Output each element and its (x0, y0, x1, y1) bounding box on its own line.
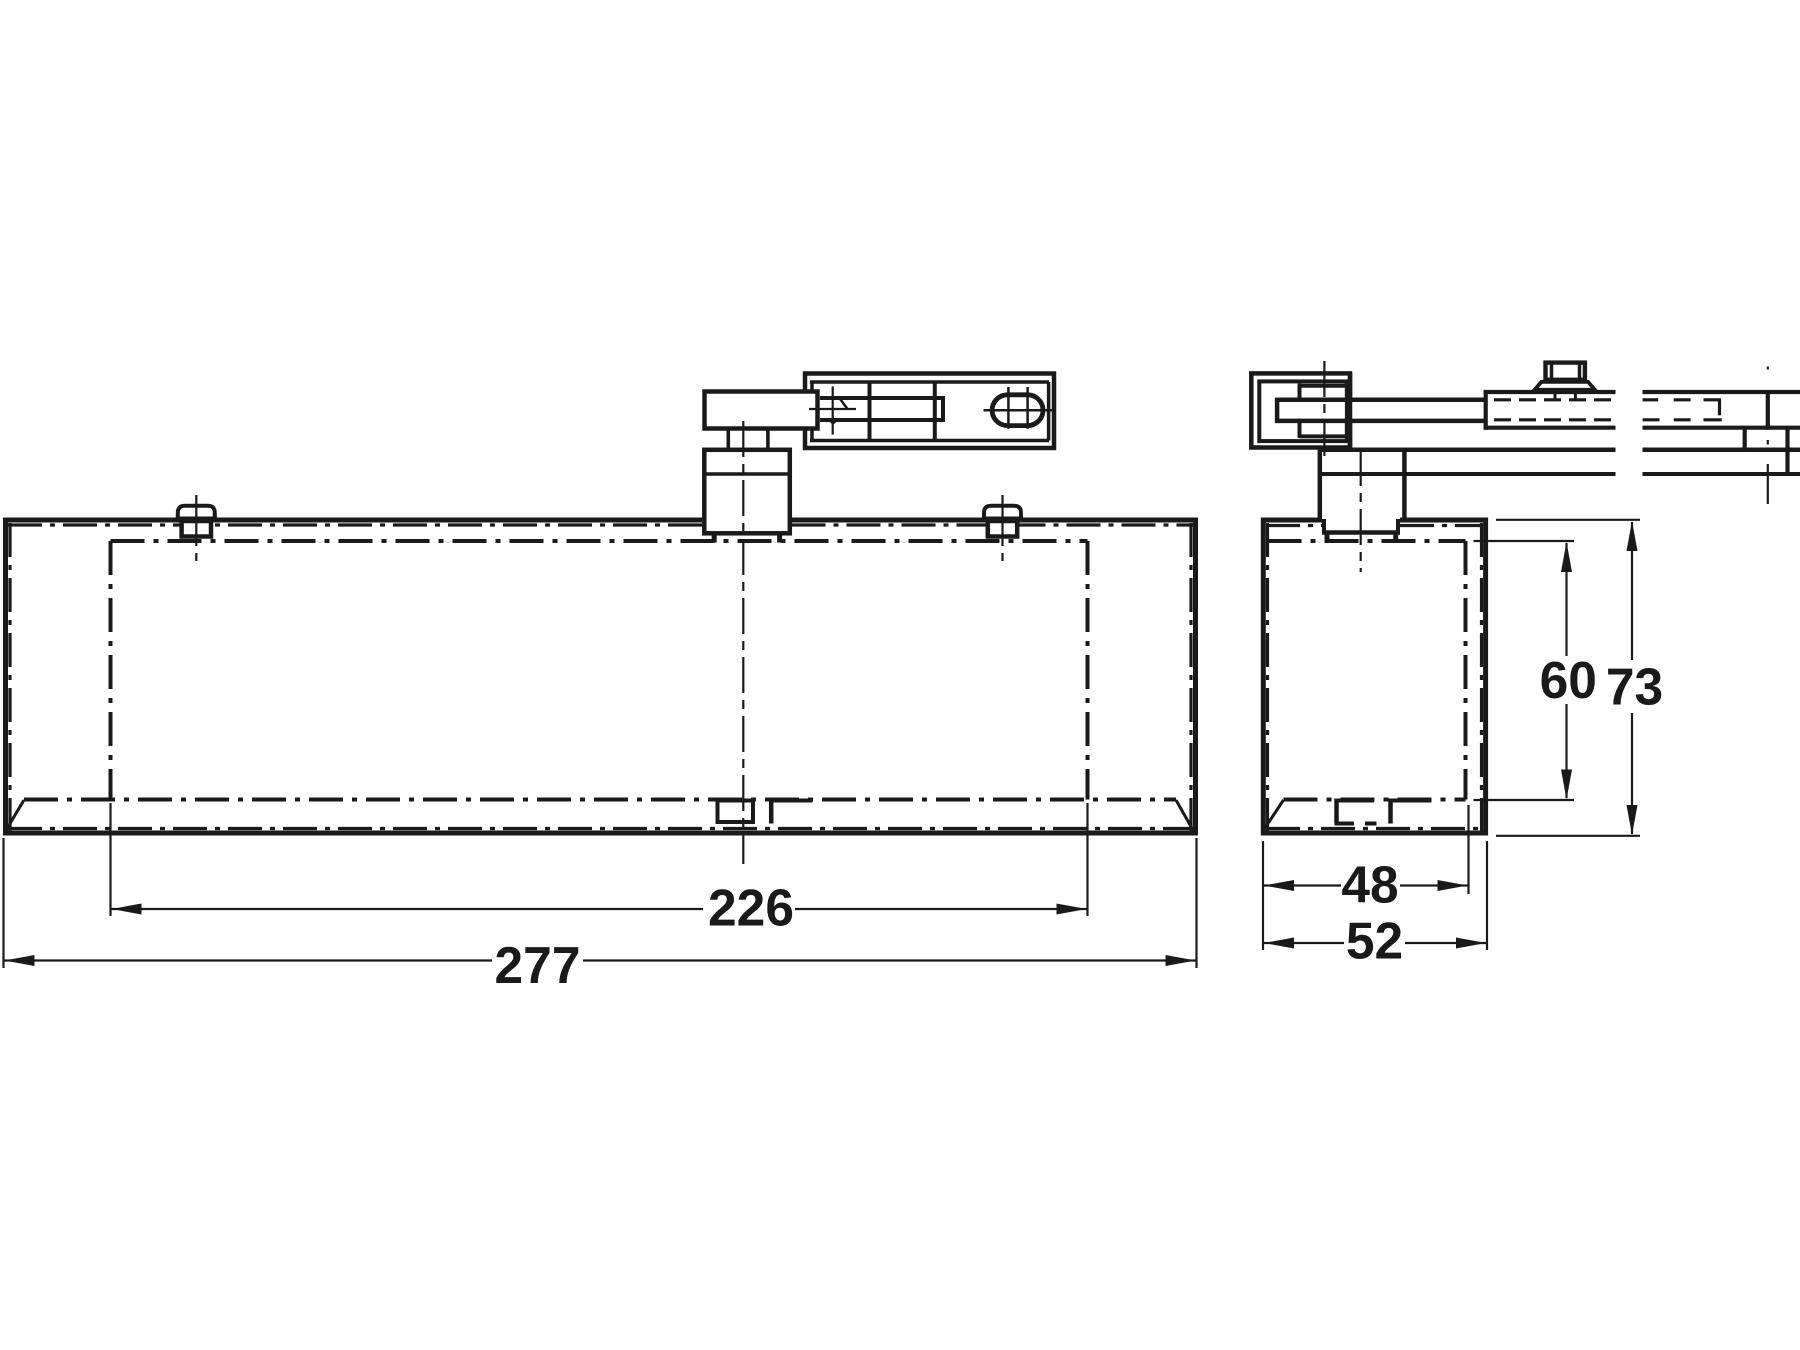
svg-text:52: 52 (1346, 912, 1403, 970)
svg-text:73: 73 (1606, 658, 1663, 716)
svg-text:48: 48 (1341, 856, 1398, 914)
svg-text:60: 60 (1540, 651, 1597, 709)
svg-text:277: 277 (495, 936, 581, 994)
svg-text:226: 226 (708, 879, 794, 937)
